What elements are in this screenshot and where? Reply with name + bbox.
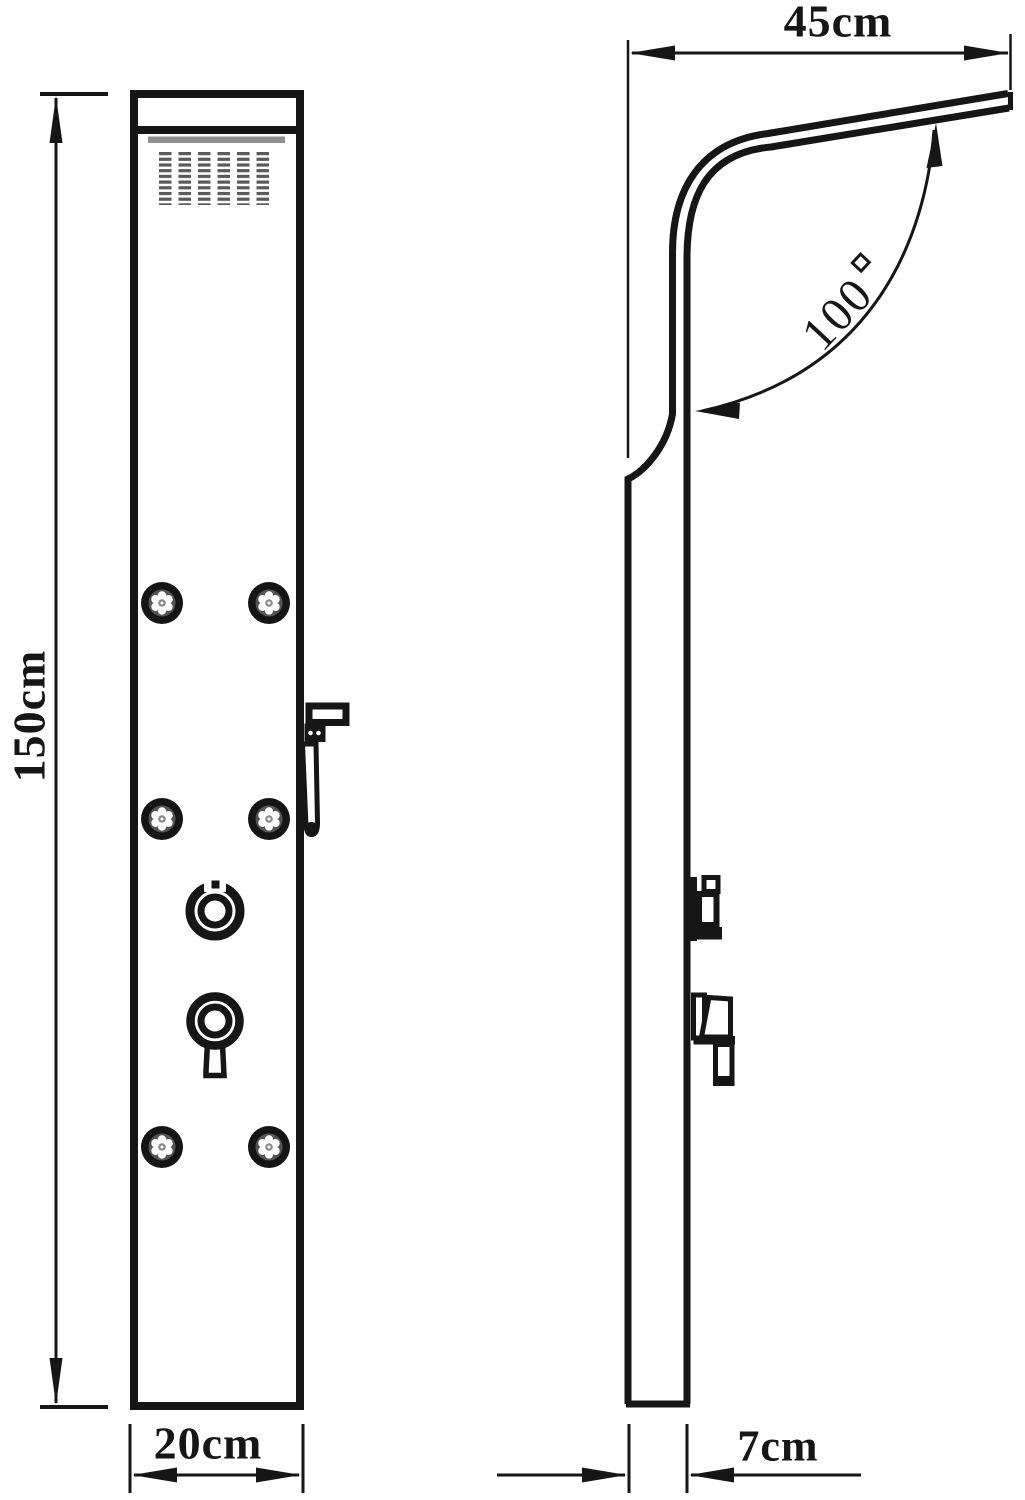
hand-shower-wand: [303, 744, 318, 835]
arrowhead-left: [132, 1468, 177, 1483]
arrowhead-inward-right: [582, 1468, 627, 1483]
shower-head-nozzle-grid: [159, 152, 269, 205]
massage-jet: [248, 798, 290, 840]
massage-jet: [141, 582, 183, 624]
massage-jet: [248, 1126, 290, 1168]
height-dimension-label: 150cm: [3, 650, 56, 783]
hand-shower-holder-arm: [309, 706, 346, 723]
mixer-knob: [191, 997, 240, 1076]
side-view: [626, 92, 1011, 1404]
side-holder-bracket: [688, 877, 722, 941]
hand-shower: [303, 706, 347, 836]
diverter-indicator-dot: [212, 881, 220, 889]
valve-body: [702, 998, 731, 1038]
hand-shower-tip: [305, 822, 319, 836]
arrowhead-up: [50, 96, 63, 143]
massage-jet: [141, 1126, 183, 1168]
diverter-inner-ring: [201, 897, 229, 925]
hand-shower-mount-block: [305, 724, 326, 743]
diverter-knob: [190, 879, 240, 937]
mount-screw: [308, 731, 313, 736]
arrowhead-down: [50, 1358, 63, 1405]
arrowhead-lower: [695, 403, 740, 420]
width-dimension-label: 20cm: [154, 1417, 263, 1470]
arrowhead-upper: [927, 123, 943, 168]
side-mixer-valve: [694, 995, 736, 1084]
depth-dimension-label: 7cm: [737, 1421, 818, 1472]
arrowhead-right: [964, 46, 1009, 61]
mixer-inner-ring: [201, 1007, 229, 1035]
bracket-knuckle: [704, 878, 718, 892]
valve-lever-cap: [715, 1076, 734, 1084]
bracket-cup: [699, 894, 717, 925]
massage-jet: [141, 798, 183, 840]
bracket-foot: [688, 927, 722, 940]
shower-head-gray-bar: [148, 137, 285, 144]
arrowhead-right: [256, 1468, 301, 1483]
shower-panel-dimension-diagram: 150cm 20cm 45cm 100 7cm: [0, 0, 1025, 1500]
arrowhead-inward-left: [689, 1468, 734, 1483]
diagram-canvas: [0, 0, 1025, 1500]
dimension-angle-100deg: [695, 123, 943, 419]
mount-screw: [316, 731, 321, 736]
arrowhead-left: [630, 46, 675, 61]
massage-jet: [248, 582, 290, 624]
angle-arc: [702, 130, 934, 411]
arm-length-dimension-label: 45cm: [784, 0, 893, 48]
panel-body-outline: [134, 94, 300, 1406]
front-view: [134, 94, 346, 1406]
